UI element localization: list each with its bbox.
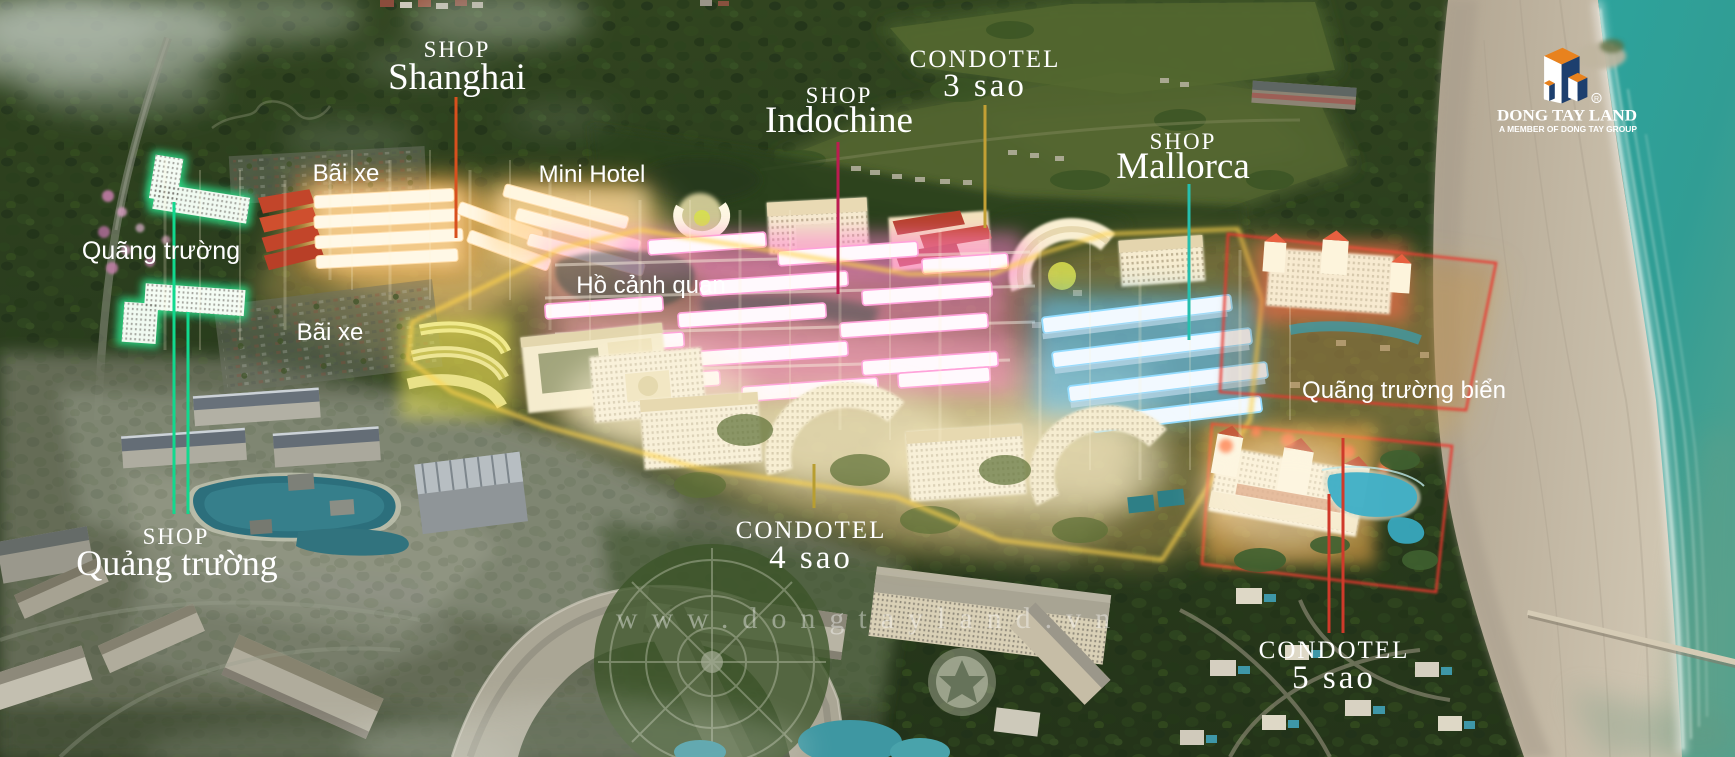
svg-text:Quảng trường: Quảng trường	[76, 543, 278, 583]
svg-text:A MEMBER OF DONG TAY GROUP: A MEMBER OF DONG TAY GROUP	[1499, 125, 1638, 134]
svg-text:4 sao: 4 sao	[769, 540, 853, 576]
svg-text:Indochine: Indochine	[765, 100, 913, 141]
svg-text:Mallorca: Mallorca	[1116, 146, 1250, 187]
svg-text:Hồ cảnh quan: Hồ cảnh quan	[576, 272, 725, 299]
svg-text:3 sao: 3 sao	[943, 68, 1027, 104]
svg-text:Bãi xe: Bãi xe	[313, 160, 380, 187]
svg-text:Quãng trường: Quãng trường	[82, 237, 240, 265]
svg-text:Shanghai: Shanghai	[388, 57, 526, 98]
svg-text:R: R	[1594, 96, 1599, 103]
svg-text:Quãng trường biển: Quãng trường biển	[1302, 377, 1506, 404]
svg-text:DONG TAY LAND: DONG TAY LAND	[1497, 108, 1637, 125]
svg-text:www.dongtayland.vn: www.dongtayland.vn	[616, 602, 1124, 635]
svg-text:5 sao: 5 sao	[1292, 660, 1376, 696]
svg-text:Bãi xe: Bãi xe	[297, 319, 364, 346]
svg-text:Mini Hotel: Mini Hotel	[539, 161, 646, 188]
